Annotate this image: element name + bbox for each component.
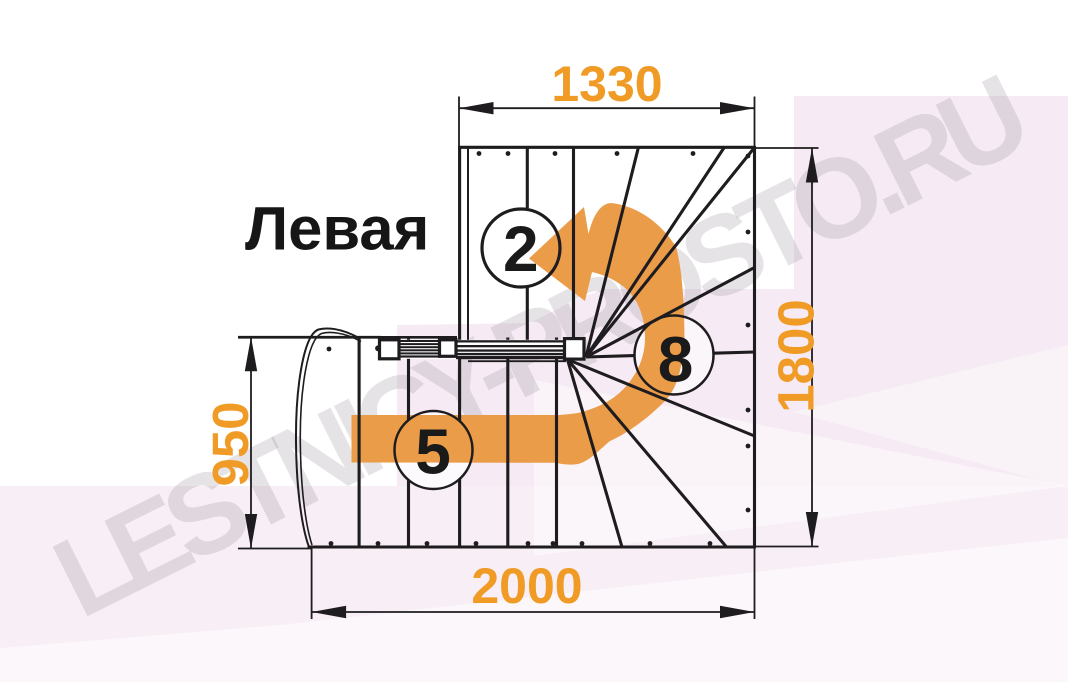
- svg-text:950: 950: [202, 401, 259, 486]
- svg-text:5: 5: [415, 416, 451, 488]
- svg-text:1800: 1800: [768, 299, 825, 412]
- svg-text:Левая: Левая: [245, 195, 429, 264]
- svg-text:1330: 1330: [551, 56, 662, 112]
- svg-text:8: 8: [658, 324, 694, 396]
- svg-text:2000: 2000: [471, 558, 582, 614]
- svg-text:2: 2: [503, 213, 539, 285]
